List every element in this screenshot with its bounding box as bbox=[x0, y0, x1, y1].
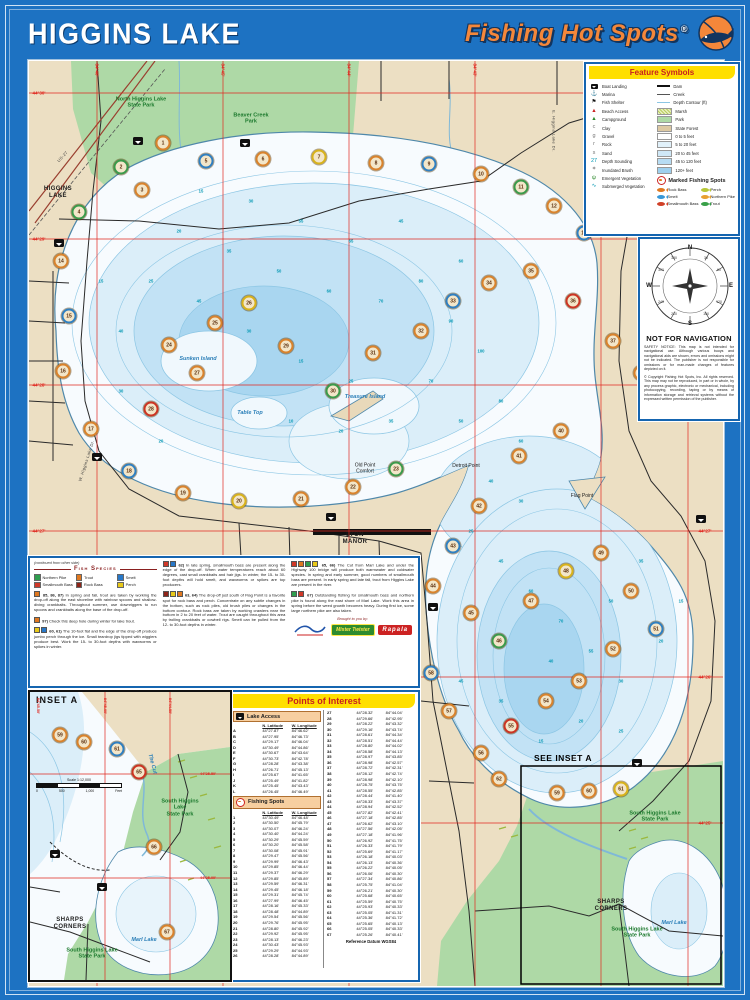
header: HIGGINS LAKE Fishing Hot Spots® bbox=[28, 10, 736, 58]
legend-item: ∿ Submerged Vegetation bbox=[589, 183, 654, 191]
fishing-note: 85, 86, 87) In spring and fall, trout ar… bbox=[34, 591, 157, 613]
fishing-spots-header: Fishing Spots bbox=[233, 796, 321, 809]
species-color-swatch bbox=[117, 582, 124, 589]
legend-item: s Sand bbox=[589, 149, 654, 157]
page-title: HIGGINS LAKE bbox=[28, 18, 241, 51]
legend-item: ψ Emergent Vegetation bbox=[589, 174, 654, 182]
marked-species-grid: Rock Bass Perch Smelt Northern Pike bbox=[657, 186, 735, 207]
fish-icon bbox=[701, 188, 709, 192]
legend-item: Depth Contour (ft) bbox=[657, 99, 735, 107]
fishing-note: 62) In late spring, smallmouth bass are … bbox=[163, 561, 286, 588]
legend-item-icon: ⚓ bbox=[589, 92, 599, 98]
legend-item: Creek bbox=[657, 90, 735, 98]
fishing-spot-rows-right: 2744°28.32'84°44.04' 2844°29.66'84°42.95… bbox=[327, 710, 415, 937]
fish-species-title: Fish Species bbox=[34, 566, 157, 572]
legend-item: ⚓ Marina bbox=[589, 90, 654, 98]
legend-item: ▲ Beach Access bbox=[589, 107, 654, 115]
legend-item-icon: g bbox=[589, 134, 599, 140]
marked-spot-icon bbox=[657, 176, 666, 185]
legend-item-icon: c bbox=[589, 125, 599, 131]
legend-item-icon: ▲ bbox=[589, 117, 599, 123]
fish-icon bbox=[657, 195, 665, 199]
feature-symbols-legend: Feature Symbols Boat Landing ⚓ Marina ⚑ … bbox=[584, 62, 740, 236]
species-chip: Rock Bass bbox=[76, 582, 116, 589]
legend-item: Marsh bbox=[657, 107, 735, 115]
legend-item-icon: ∿ bbox=[589, 184, 599, 190]
species-color-swatch bbox=[34, 574, 41, 581]
sponsor-script-logo bbox=[293, 623, 327, 637]
species-chip: Smelt bbox=[117, 574, 157, 581]
legend-depth-bands: 0 to 5 feet 5 to 20 feet 20 to 45 feet 4… bbox=[657, 132, 735, 174]
legend-left-column: Boat Landing ⚓ Marina ⚑ Fish Shelter ▲ B… bbox=[589, 82, 654, 207]
legend-item: State Forest bbox=[657, 124, 735, 132]
inset-base-art bbox=[30, 692, 230, 980]
legend-item-icon: 27 bbox=[589, 159, 599, 165]
legend-area-items: Marsh Park State Forest bbox=[657, 107, 735, 132]
legend-item-icon: ▲ bbox=[589, 109, 599, 115]
reference-datum: Reference Datum WGS84 bbox=[327, 939, 415, 944]
fish-icon bbox=[657, 202, 665, 206]
fish-species-box: (continued from other side) Fish Species… bbox=[28, 556, 420, 688]
legend-item: Park bbox=[657, 116, 735, 124]
fish-box-col3: 65, 66) The Cut from Marl Lake and under… bbox=[291, 561, 414, 683]
legend-item: c Clay bbox=[589, 124, 654, 132]
not-for-navigation-heading: NOT FOR NAVIGATION bbox=[644, 334, 734, 343]
depth-band-item: 45 to 120 feet bbox=[657, 158, 735, 166]
species-chip: Trout bbox=[76, 574, 116, 581]
legend-item-icon: ψ bbox=[589, 176, 599, 182]
species-color-swatch bbox=[117, 574, 124, 581]
map-sheet: HIGGINS LAKE Fishing Hot Spots® bbox=[0, 0, 750, 1000]
fish-box-col2: 62) In late spring, smallmouth bass are … bbox=[163, 561, 286, 683]
poi-title: Points of Interest bbox=[233, 694, 415, 708]
species-color-swatch bbox=[34, 582, 41, 589]
table-row: 6744°25.26'84°40.41' bbox=[327, 932, 415, 938]
legend-line-items: Dam Creek Depth Contour (ft) bbox=[657, 82, 735, 107]
table-row: 2644°28.28'84°44.89' bbox=[233, 953, 321, 959]
lake-access-icon bbox=[236, 713, 244, 720]
legend-item: r Rock bbox=[589, 141, 654, 149]
legend-item: g Gravel bbox=[589, 132, 654, 140]
sponsor-note: Brought to you by: bbox=[291, 617, 414, 621]
brand-name: Fishing Hot Spots® bbox=[465, 20, 688, 48]
lake-access-header: Lake Access bbox=[233, 711, 321, 722]
continued-note: (continued from other side) bbox=[34, 561, 157, 565]
legend-right-column: Dam Creek Depth Contour (ft) Marsh bbox=[657, 82, 735, 207]
marked-species-item: Rock Bass bbox=[657, 186, 698, 193]
species-color-swatch bbox=[76, 582, 83, 589]
depth-band-item: 0 to 5 feet bbox=[657, 132, 735, 140]
sponsor-mister-twister: Mister Twister bbox=[331, 624, 374, 636]
poi-left-column: Lake Access N. LatitudeW. Longitude A44°… bbox=[233, 710, 324, 968]
species-chip: Perch bbox=[117, 582, 157, 589]
notes-col1: 85, 86, 87) In spring and fall, trout ar… bbox=[34, 591, 157, 649]
notes-col3: 65, 66) The Cut from Marl Lake and under… bbox=[291, 561, 414, 613]
fish-box-col1: (continued from other side) Fish Species… bbox=[34, 561, 157, 683]
fishing-spot-rows-left: 144°30.49'84°46.48' 244°30.50'84°45.79' … bbox=[233, 815, 321, 959]
species-chip: Northern Pike bbox=[34, 574, 74, 581]
inset-a-map: INSET A Scale 1:12,000 0 500 1,000 Feet … bbox=[28, 690, 232, 982]
legend-item: Dam bbox=[657, 82, 735, 90]
compass-rose: NESW 3060120150210240300330 bbox=[644, 241, 736, 331]
legend-item: Boat Landing bbox=[589, 82, 654, 90]
legend-item: 27 Depth Sounding bbox=[589, 158, 654, 166]
legend-item: ⚑ Fish Shelter bbox=[589, 99, 654, 107]
marked-fishing-spots-title: Marked Fishing Spots bbox=[657, 176, 735, 185]
depth-band-item: 120+ feet bbox=[657, 166, 735, 174]
inset-scale-bar: Scale 1:12,000 0 500 1,000 Feet bbox=[36, 778, 122, 793]
table-row: L44°26.45'84°46.49' bbox=[233, 789, 321, 795]
marked-species-item: Perch bbox=[701, 186, 735, 193]
fishing-spots-icon bbox=[236, 798, 245, 807]
brand: Fishing Hot Spots® bbox=[465, 14, 736, 54]
fishing-note: 97) Check this deep hole during winter f… bbox=[34, 617, 157, 624]
fish-icon bbox=[701, 195, 709, 199]
sponsor-logos: Mister Twister Rapala bbox=[291, 623, 414, 637]
marked-species-item: Smallmouth Bass bbox=[657, 200, 698, 207]
legend-item-icon bbox=[589, 84, 599, 89]
fishing-note: 63, 64) The drop-off just south of Flag … bbox=[163, 591, 286, 628]
depth-band-item: 5 to 20 feet bbox=[657, 141, 735, 149]
marked-species-item: Northern Pike bbox=[701, 193, 735, 200]
sponsor-rapala: Rapala bbox=[378, 625, 412, 635]
species-chip: Smallmouth Bass bbox=[34, 582, 74, 589]
lake-access-rows: A44°27.87'84°46.62' B44°27.95'84°46.73' … bbox=[233, 728, 321, 795]
points-of-interest-box: Points of Interest Lake Access N. Latitu… bbox=[228, 690, 420, 982]
legend-item-icon: s bbox=[589, 151, 599, 157]
fishing-note: 67) Outstanding fishing for smallmouth b… bbox=[291, 591, 414, 613]
legend-item: ✶ Inundated Brush bbox=[589, 166, 654, 174]
species-color-swatch bbox=[76, 574, 83, 581]
copyright-notice: © Copyright Fishing Hot Spots, Inc. All … bbox=[644, 375, 734, 402]
fish-icon bbox=[701, 202, 709, 206]
compass-rose-art bbox=[644, 241, 736, 331]
airstrip-shape bbox=[313, 529, 431, 535]
marked-species-item: Smelt bbox=[657, 193, 698, 200]
fish-logo-icon bbox=[694, 14, 736, 54]
marked-species-item: Trout bbox=[701, 200, 735, 207]
fish-icon bbox=[657, 188, 665, 192]
species-legend: Northern Pike Trout Smelt Smallmouth Bas… bbox=[34, 574, 157, 588]
poi-right-column: 2744°28.32'84°44.04' 2844°29.66'84°42.95… bbox=[324, 710, 415, 968]
safety-notice: SAFETY NOTICE: This map is not intended … bbox=[644, 345, 734, 372]
legend-item: ▲ Campground bbox=[589, 116, 654, 124]
legend-item-icon: r bbox=[589, 142, 599, 148]
fishing-note: 60, 61) The 10-foot flat and the edge of… bbox=[34, 627, 157, 649]
depth-band-item: 20 to 45 feet bbox=[657, 149, 735, 157]
inset-a-label: INSET A bbox=[36, 695, 78, 705]
legend-item-icon: ✶ bbox=[589, 167, 599, 173]
fishing-note: 65, 66) The Cut from Marl Lake and under… bbox=[291, 561, 414, 588]
legend-item-icon: ⚑ bbox=[589, 100, 599, 106]
compass-box: NESW 3060120150210240300330 NOT FOR NAVI… bbox=[638, 237, 740, 421]
legend-title: Feature Symbols bbox=[589, 66, 735, 79]
